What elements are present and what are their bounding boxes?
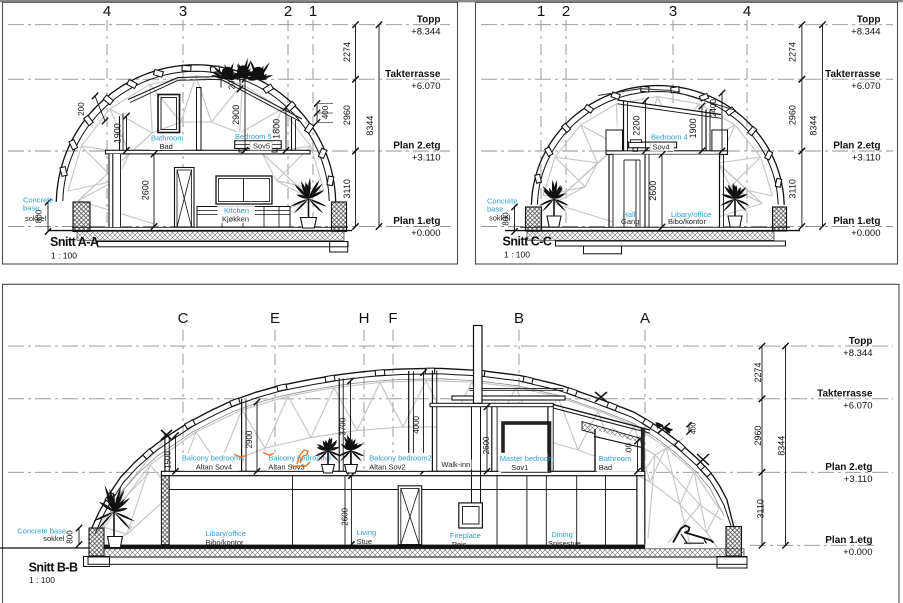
svg-text:1 : 100: 1 : 100 xyxy=(504,250,530,260)
svg-text:2: 2 xyxy=(562,3,570,20)
svg-text:2960: 2960 xyxy=(787,105,797,125)
svg-text:8344: 8344 xyxy=(808,116,818,136)
svg-text:Topp: Topp xyxy=(857,14,881,25)
svg-text:sokkel: sokkel xyxy=(43,534,65,543)
svg-text:F: F xyxy=(388,310,397,327)
svg-text:Snitt A-A: Snitt A-A xyxy=(50,235,99,249)
svg-text:Stue: Stue xyxy=(357,537,372,546)
svg-text:2960: 2960 xyxy=(342,105,352,125)
svg-text:2960: 2960 xyxy=(753,426,763,446)
svg-text:Takterrasse: Takterrasse xyxy=(385,69,441,80)
svg-text:B: B xyxy=(514,310,524,327)
svg-text:Walk-inn: Walk-inn xyxy=(441,460,470,469)
svg-text:Master bedroom: Master bedroom xyxy=(500,454,555,463)
svg-text:8344: 8344 xyxy=(365,116,375,136)
svg-text:Kitchen: Kitchen xyxy=(224,206,249,215)
svg-text:1800: 1800 xyxy=(272,119,282,139)
svg-text:+8.344: +8.344 xyxy=(851,26,880,37)
svg-text:3110: 3110 xyxy=(756,499,766,518)
svg-text:Bad: Bad xyxy=(599,463,612,472)
svg-text:Gang: Gang xyxy=(621,217,639,226)
svg-text:2: 2 xyxy=(284,3,292,20)
svg-text:Plan 1.etg: Plan 1.etg xyxy=(833,216,880,227)
svg-text:+6.070: +6.070 xyxy=(843,401,872,412)
svg-text:2400: 2400 xyxy=(709,99,718,117)
svg-text:4: 4 xyxy=(743,3,751,20)
svg-text:+6.070: +6.070 xyxy=(851,81,880,92)
svg-text:Kjøkken: Kjøkken xyxy=(222,215,249,224)
svg-text:4: 4 xyxy=(103,3,111,20)
svg-text:Topp: Topp xyxy=(849,336,873,347)
svg-text:Plan 1.etg: Plan 1.etg xyxy=(825,535,872,546)
svg-text:+3.110: +3.110 xyxy=(844,474,873,485)
svg-text:2274: 2274 xyxy=(342,42,352,62)
svg-text:Dining: Dining xyxy=(552,530,573,539)
svg-text:+6.070: +6.070 xyxy=(411,81,440,92)
svg-text:+8.344: +8.344 xyxy=(843,348,872,359)
svg-text:base: base xyxy=(23,204,39,213)
svg-text:Libary/office: Libary/office xyxy=(206,529,246,538)
svg-text:3110: 3110 xyxy=(342,179,352,198)
svg-text:Snitt B-B: Snitt B-B xyxy=(29,561,78,575)
svg-text:2900: 2900 xyxy=(231,105,241,125)
svg-text:+0.000: +0.000 xyxy=(411,228,440,239)
svg-text:Bedroom 5: Bedroom 5 xyxy=(235,132,272,141)
svg-text:Snitt C-C: Snitt C-C xyxy=(503,235,552,249)
svg-text:Altan Sov2: Altan Sov2 xyxy=(369,462,405,471)
svg-text:1500: 1500 xyxy=(164,451,173,469)
svg-text:Plan 2.etg: Plan 2.etg xyxy=(393,141,440,152)
svg-text:1900: 1900 xyxy=(688,118,698,138)
svg-text:8344: 8344 xyxy=(776,436,786,456)
svg-text:Balcony bedroom2: Balcony bedroom2 xyxy=(369,453,432,462)
svg-text:Takterrasse: Takterrasse xyxy=(817,389,873,400)
svg-text:+3.110: +3.110 xyxy=(852,153,881,164)
svg-text:Bathroom: Bathroom xyxy=(599,454,632,463)
svg-text:+3.110: +3.110 xyxy=(412,153,441,164)
svg-text:Sov4: Sov4 xyxy=(653,143,670,152)
svg-text:3: 3 xyxy=(179,3,187,20)
svg-text:2600: 2600 xyxy=(482,436,491,454)
svg-text:4000: 4000 xyxy=(412,415,421,433)
svg-text:400: 400 xyxy=(691,422,698,434)
svg-text:Plan 1.etg: Plan 1.etg xyxy=(393,216,440,227)
svg-text:H: H xyxy=(359,310,370,327)
svg-text:Altan Sov4: Altan Sov4 xyxy=(196,462,232,471)
svg-text:1900: 1900 xyxy=(113,123,123,143)
svg-text:Living: Living xyxy=(357,528,377,537)
svg-text:800: 800 xyxy=(66,530,75,544)
svg-text:Peis: Peis xyxy=(452,540,467,549)
svg-text:2274: 2274 xyxy=(787,42,797,62)
svg-text:1: 1 xyxy=(309,3,317,20)
svg-text:+0.000: +0.000 xyxy=(843,547,872,558)
svg-text:2900: 2900 xyxy=(245,430,254,448)
svg-text:400: 400 xyxy=(321,105,330,119)
svg-text:base: base xyxy=(487,205,503,214)
svg-text:Takterrasse: Takterrasse xyxy=(825,69,881,80)
svg-text:sokkel: sokkel xyxy=(489,214,511,223)
svg-text:1 : 100: 1 : 100 xyxy=(29,575,55,585)
svg-text:2274: 2274 xyxy=(753,362,763,382)
svg-text:1: 1 xyxy=(537,3,545,20)
svg-text:3700: 3700 xyxy=(339,417,348,435)
svg-text:Bibo/kontor: Bibo/kontor xyxy=(206,538,244,547)
svg-text:Bedroom 4: Bedroom 4 xyxy=(651,132,688,141)
svg-text:2600: 2600 xyxy=(141,180,151,200)
svg-text:1 : 100: 1 : 100 xyxy=(51,251,77,261)
svg-text:200: 200 xyxy=(77,102,86,116)
svg-text:Sov1: Sov1 xyxy=(511,463,528,472)
svg-text:+8.344: +8.344 xyxy=(411,26,440,37)
svg-text:Plan 2.etg: Plan 2.etg xyxy=(825,462,872,473)
svg-text:3110: 3110 xyxy=(787,179,797,198)
svg-text:Sov5: Sov5 xyxy=(253,142,270,151)
svg-text:C: C xyxy=(178,310,189,327)
svg-text:A: A xyxy=(640,310,650,327)
svg-text:Topp: Topp xyxy=(417,14,441,25)
svg-text:2200: 2200 xyxy=(631,116,641,136)
svg-text:Altan Sov3: Altan Sov3 xyxy=(268,462,304,471)
svg-text:2600: 2600 xyxy=(341,507,350,525)
svg-text:sokkel: sokkel xyxy=(25,214,47,223)
svg-text:2600: 2600 xyxy=(648,181,658,201)
svg-text:E: E xyxy=(270,310,280,327)
svg-text:Fireplace: Fireplace xyxy=(450,531,481,540)
svg-text:+0.000: +0.000 xyxy=(851,228,880,239)
svg-text:3: 3 xyxy=(669,3,677,20)
svg-text:Spisestue: Spisestue xyxy=(548,539,581,548)
svg-text:Bibo/kontor: Bibo/kontor xyxy=(668,217,706,226)
svg-text:Plan 2.etg: Plan 2.etg xyxy=(833,141,880,152)
svg-text:Bad: Bad xyxy=(160,142,173,151)
